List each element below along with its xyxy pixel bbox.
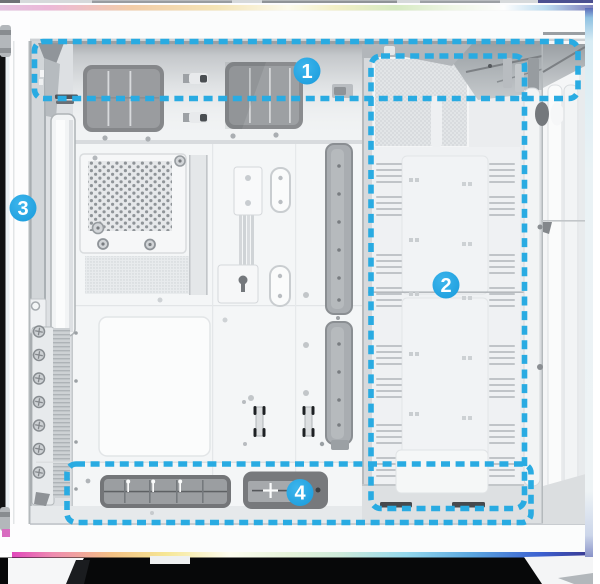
svg-text:3: 3 <box>17 198 28 220</box>
svg-text:4: 4 <box>294 483 306 505</box>
svg-text:2: 2 <box>440 275 451 297</box>
svg-text:1: 1 <box>301 61 312 83</box>
